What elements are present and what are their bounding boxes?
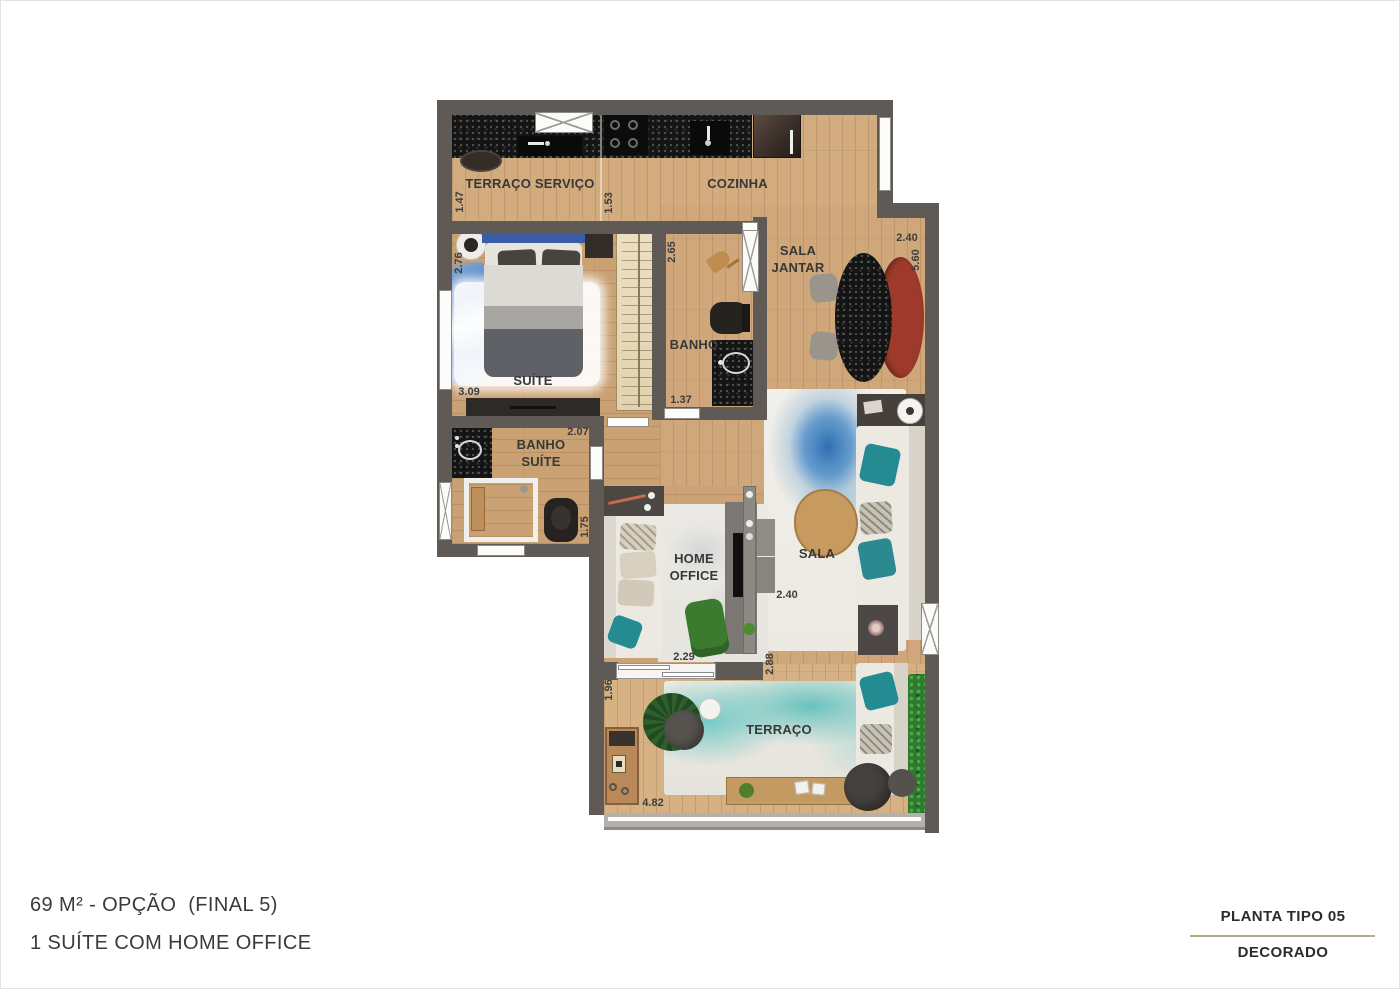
dining-chair	[809, 331, 840, 362]
wall-left-top	[437, 100, 452, 234]
window-dining-right	[879, 117, 891, 191]
room-label-sala: SALA	[795, 546, 839, 563]
second-faucet-icon	[707, 126, 710, 140]
fridge-handle	[790, 130, 793, 154]
terrace-round-table-small	[888, 769, 916, 797]
room-label-terraco-servico: TERRAÇO SERVIÇO	[455, 176, 605, 193]
door-banho	[664, 408, 700, 419]
dim-banho-depth: 2.65	[665, 235, 679, 269]
dim-hall-width: 1.37	[664, 393, 698, 407]
dim-banho-suite-depth: 1.75	[578, 510, 592, 544]
wall-kitchen-bottom	[437, 221, 763, 234]
burner-icon	[628, 120, 638, 130]
rail-knob-icon	[746, 520, 753, 527]
kitchen-faucet-dot	[545, 141, 550, 146]
closet-rail	[638, 233, 640, 407]
room-label-banho-suite: BANHO SUÍTE	[496, 437, 586, 471]
dresser-handle	[510, 406, 556, 409]
second-faucet-dot	[705, 140, 711, 146]
laundry-tub	[460, 150, 502, 172]
door-suite	[607, 417, 649, 427]
bs-shower-drain-icon	[520, 485, 528, 493]
bs-faucet-dot	[455, 436, 459, 440]
dining-chair	[809, 273, 840, 304]
dim-terraco-width: 4.82	[636, 796, 670, 810]
plate-subtitle: DECORADO	[1188, 944, 1378, 961]
rail-knob-icon	[746, 533, 753, 540]
rail-knob-icon	[746, 491, 753, 498]
banho-basin-icon	[722, 352, 750, 374]
wall-right-main	[925, 203, 939, 833]
terrace-round-table	[844, 763, 892, 811]
sliding-door-panel	[618, 665, 670, 670]
window-banho-suite-left	[439, 482, 452, 540]
bs-shower-bench	[471, 487, 485, 531]
table-decor-white	[811, 782, 825, 795]
dim-terraco-depth: 1.96	[602, 673, 616, 707]
green-knob-icon	[743, 623, 755, 635]
bar-cart-glyph-dot	[616, 761, 622, 767]
room-label-banho: BANHO	[668, 337, 720, 354]
wall-terrace-stub	[714, 662, 763, 680]
burner-icon	[628, 138, 638, 148]
room-label-home-office: HOME OFFICE	[649, 551, 739, 585]
dim-servico-width: 1.47	[453, 185, 467, 219]
table-decor-white	[794, 780, 810, 795]
sofa-pillow-teal	[858, 443, 901, 488]
dim-home-office-width: 2.29	[667, 650, 701, 664]
shelf-decor-dot	[644, 504, 651, 511]
room-label-terraco: TERRAÇO	[745, 722, 813, 739]
dim-sala-depth: 2.88	[763, 647, 777, 681]
second-sink	[690, 121, 730, 155]
floor-plan-canvas: TERRAÇO SERVIÇO COZINHA SALA JANTAR BANH…	[0, 0, 1400, 989]
shaft-banho	[742, 230, 759, 292]
sideboard-decor	[863, 400, 882, 414]
dining-table	[835, 253, 892, 382]
wall-top	[437, 100, 893, 115]
burner-icon	[610, 138, 620, 148]
banho-toilet-tank	[742, 304, 750, 332]
plate-title: PLANTA TIPO 05	[1188, 908, 1378, 925]
terrace-railing-glass	[608, 817, 921, 821]
fridge	[753, 112, 801, 158]
flower-decor-icon	[868, 620, 884, 636]
bar-cart-wheel-icon	[609, 783, 617, 791]
room-label-sala-jantar: SALA JANTAR	[762, 243, 834, 277]
dim-suite-width: 2.76	[452, 246, 466, 280]
nightstand	[585, 230, 613, 258]
dim-cozinha-width: 1.53	[602, 186, 616, 220]
kitchen-faucet-icon	[528, 142, 544, 145]
plate-divider-line	[1190, 935, 1375, 937]
sofa-pillow-pattern	[859, 501, 893, 535]
sliding-door-panel	[662, 672, 714, 677]
shaft-kitchen	[535, 112, 593, 133]
terrace-ottoman	[664, 710, 704, 750]
bed-blanket-dark	[484, 329, 583, 377]
area-subtitle: 1 SUÍTE COM HOME OFFICE	[30, 932, 311, 955]
room-label-suite: SUÍTE	[505, 373, 561, 390]
bs-faucet-dot	[455, 444, 459, 448]
bowl-green-icon	[739, 783, 754, 798]
window-banho-suite-bottom	[477, 545, 525, 556]
kitchen-sink	[518, 136, 582, 156]
banho-faucet-dot	[718, 360, 723, 365]
record-center-dot	[906, 407, 914, 415]
bed-sheet	[484, 265, 583, 309]
bar-cart-wheel-icon	[621, 787, 629, 795]
terrace-pillow-pattern	[860, 724, 892, 754]
window-suite-left	[439, 290, 452, 390]
area-title: 69 M² - OPÇÃO (FINAL 5)	[30, 894, 278, 917]
terrace-side-table	[699, 698, 721, 720]
sofa-pillow-teal	[857, 537, 897, 580]
window-sala-right	[921, 603, 939, 655]
room-label-cozinha: COZINHA	[695, 176, 780, 193]
panel-shelf-box	[757, 519, 775, 556]
dim-suite-depth: 3.09	[452, 385, 486, 399]
wall-banho-left	[652, 229, 666, 420]
bar-cart-top	[609, 731, 635, 746]
terrace-railing-edge	[604, 827, 925, 830]
shelf-decor-dot	[648, 492, 655, 499]
bs-basin-icon	[458, 440, 482, 460]
office-cushion	[619, 523, 657, 551]
dim-sala-width: 2.40	[770, 588, 804, 602]
bs-toilet-seat	[551, 506, 571, 530]
dim-banho-suite-width: 2.07	[561, 425, 595, 439]
bedside-lamp-icon	[464, 238, 478, 252]
door-banho-suite	[590, 446, 603, 480]
dim-jantar-depth: 5.60	[909, 243, 923, 277]
burner-icon	[610, 120, 620, 130]
